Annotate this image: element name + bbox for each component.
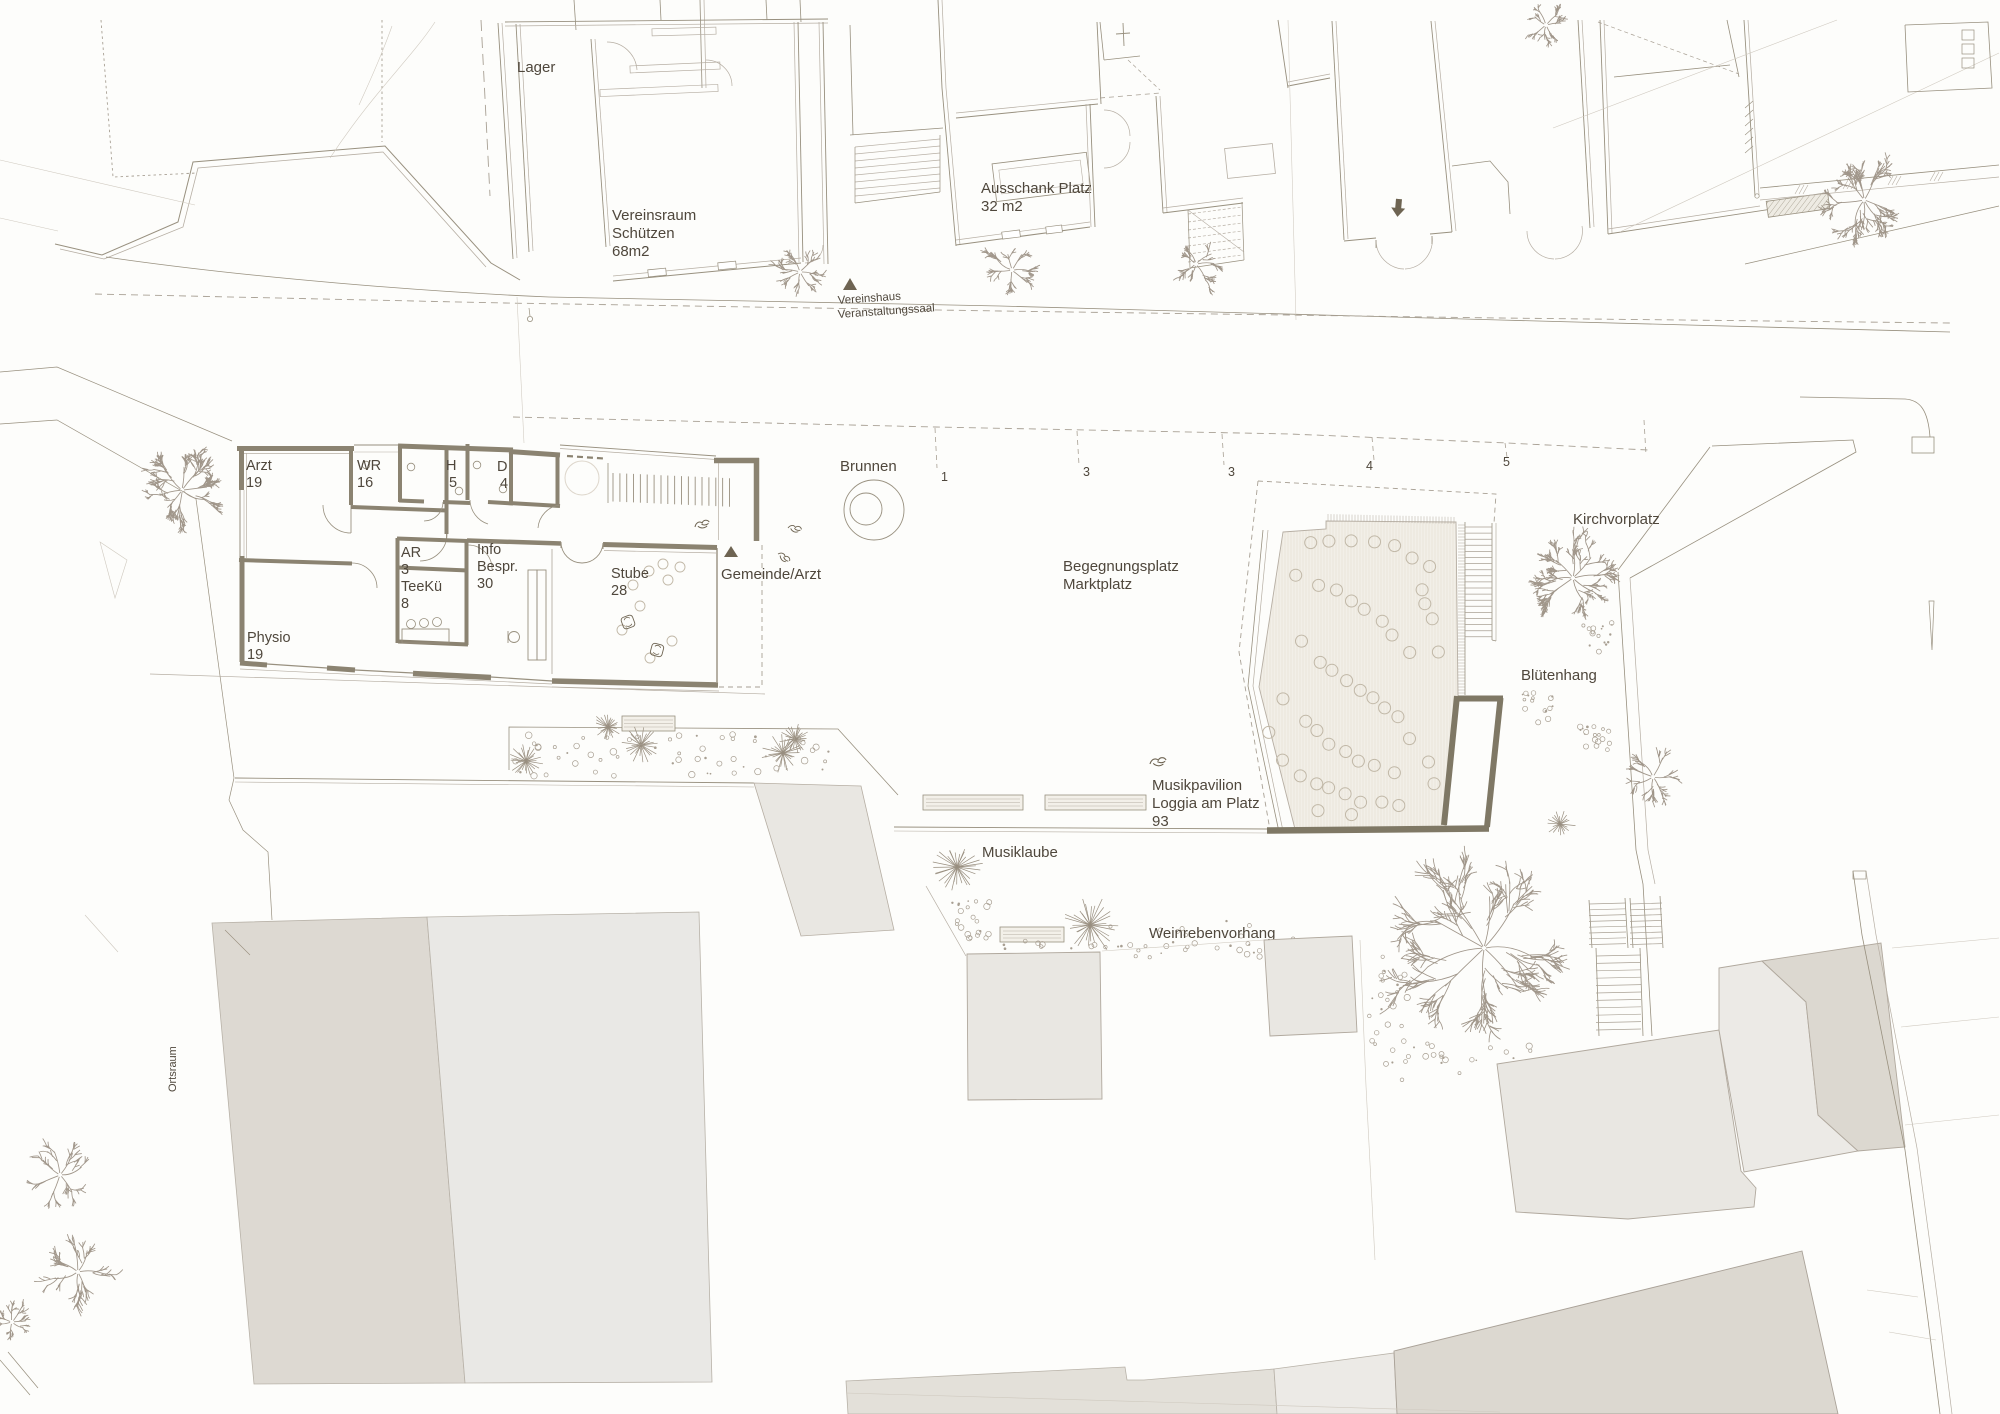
svg-text:4: 4	[1366, 459, 1373, 473]
svg-text:Kirchvorplatz: Kirchvorplatz	[1573, 511, 1660, 528]
svg-text:32 m2: 32 m2	[981, 198, 1023, 215]
svg-text:Bespr.: Bespr.	[477, 559, 518, 575]
svg-text:3: 3	[1228, 465, 1235, 479]
svg-text:Marktplatz: Marktplatz	[1063, 576, 1132, 593]
svg-text:H: H	[446, 458, 456, 474]
svg-text:4: 4	[500, 476, 508, 492]
svg-text:Ausschank Platz: Ausschank Platz	[981, 180, 1092, 197]
svg-text:93: 93	[1152, 813, 1169, 830]
svg-text:28: 28	[611, 583, 627, 599]
svg-text:68m2: 68m2	[612, 243, 650, 260]
svg-text:19: 19	[246, 475, 262, 491]
svg-text:Brunnen: Brunnen	[840, 458, 897, 475]
svg-text:TeeKü: TeeKü	[401, 579, 442, 595]
svg-text:Arzt: Arzt	[246, 458, 272, 474]
svg-text:Stube: Stube	[611, 566, 649, 582]
svg-text:D: D	[497, 459, 507, 475]
svg-text:19: 19	[247, 647, 263, 663]
svg-text:Physio: Physio	[247, 630, 291, 646]
svg-text:Info: Info	[477, 542, 501, 558]
svg-text:Lager: Lager	[517, 59, 555, 76]
svg-text:WR: WR	[357, 458, 381, 474]
svg-text:1: 1	[941, 470, 948, 484]
svg-text:AR: AR	[401, 545, 421, 561]
svg-text:8: 8	[401, 596, 409, 612]
svg-text:Musikpavilion: Musikpavilion	[1152, 777, 1242, 794]
svg-text:Loggia am Platz: Loggia am Platz	[1152, 795, 1260, 812]
svg-text:Vereinsraum: Vereinsraum	[612, 207, 696, 224]
svg-text:30: 30	[477, 576, 493, 592]
svg-text:Gemeinde/Arzt: Gemeinde/Arzt	[721, 566, 822, 583]
svg-text:Schützen: Schützen	[612, 225, 675, 242]
svg-text:3: 3	[401, 562, 409, 578]
svg-text:Musiklaube: Musiklaube	[982, 844, 1058, 861]
svg-text:5: 5	[1503, 455, 1510, 469]
svg-text:Ortsraum: Ortsraum	[167, 1046, 179, 1092]
svg-text:3: 3	[1083, 465, 1090, 479]
svg-text:Begegnungsplatz: Begegnungsplatz	[1063, 558, 1179, 575]
svg-text:16: 16	[357, 475, 373, 491]
svg-text:Weinrebenvorhang: Weinrebenvorhang	[1149, 925, 1275, 942]
svg-text:5: 5	[449, 475, 457, 491]
svg-text:Blütenhang: Blütenhang	[1521, 667, 1597, 684]
